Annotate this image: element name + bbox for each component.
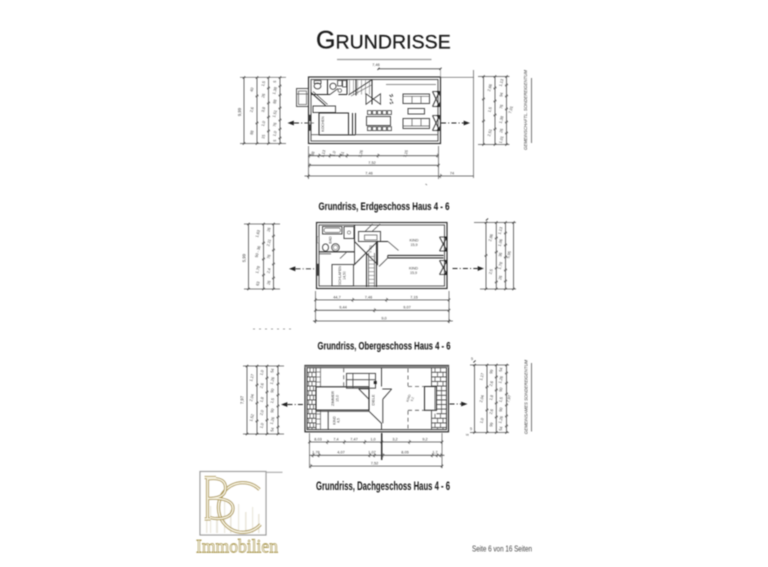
svg-text:14,50: 14,50 [343,271,347,280]
svg-text:74: 74 [450,172,454,176]
svg-text:Grundriss, Obergeschoss Haus 4: Grundriss, Obergeschoss Haus 4 - 6 [318,341,451,353]
svg-text:7,97: 7,97 [240,395,245,404]
svg-text:SCHLAFEN: SCHLAFEN [338,266,342,286]
svg-text:3,2: 3,2 [392,437,397,441]
svg-text:ZIMMER: ZIMMER [331,391,335,406]
svg-text:4,5: 4,5 [337,418,341,423]
svg-text:DIELE: DIELE [372,394,376,405]
svg-text:7,47: 7,47 [350,437,357,441]
svg-text:9 Stg: 9 Stg [369,245,373,253]
svg-text:Grundriss, Erdgeschoss Haus 4: Grundriss, Erdgeschoss Haus 4 - 6 [319,201,450,213]
svg-text:9,44: 9,44 [339,306,346,310]
svg-text:7,46: 7,46 [372,63,379,67]
svg-text:15,9: 15,9 [410,271,417,275]
svg-text:9,07: 9,07 [403,306,410,310]
svg-text:7,4: 7,4 [333,437,338,441]
svg-text:GEMEINSAMES SONDEREIGENTUM: GEMEINSAMES SONDEREIGENTUM [524,359,529,434]
svg-text:44,7: 44,7 [333,295,340,299]
svg-text:7,15: 7,15 [410,295,417,299]
svg-text:7,52: 7,52 [371,462,378,466]
svg-text:KIND: KIND [409,239,418,243]
svg-text:8,05: 8,05 [401,451,408,455]
svg-text:15,0: 15,0 [336,395,340,402]
svg-text:GRUNDRISSE: GRUNDRISSE [316,27,451,55]
svg-text:KOCHEN: KOCHEN [321,116,325,132]
svg-text:9,0: 9,0 [381,316,386,320]
svg-text:1,76: 1,76 [312,451,319,455]
svg-text:GEMEINSCHAFTL. SONDEREIGENTUM: GEMEINSCHAFTL. SONDEREIGENTUM [523,70,528,150]
svg-text:Immobilien: Immobilien [196,537,278,558]
svg-text:9,2: 9,2 [422,437,427,441]
svg-text:KIND: KIND [409,267,418,271]
svg-text:8,03: 8,03 [314,437,321,441]
svg-text:BAD: BAD [329,236,333,244]
svg-text:Seite 6 von 16 Seiten: Seite 6 von 16 Seiten [472,545,532,554]
svg-text:7,46: 7,46 [365,295,372,299]
svg-text:4,07: 4,07 [337,451,344,455]
svg-text:7,46: 7,46 [365,171,372,175]
svg-text:9,99: 9,99 [237,107,242,116]
svg-text:5,99: 5,99 [242,253,247,262]
svg-text:1,0: 1,0 [370,437,375,441]
svg-text:5: 5 [471,357,473,361]
svg-text:15,9: 15,9 [411,243,418,247]
svg-text:1,07: 1,07 [368,451,375,455]
svg-text:Grundriss, Dachgeschoss Haus 4: Grundriss, Dachgeschoss Haus 4 - 6 [316,480,450,493]
svg-text:1,7: 1,7 [432,451,437,455]
svg-text:5: 5 [470,427,472,431]
svg-text:7,52: 7,52 [368,161,375,165]
